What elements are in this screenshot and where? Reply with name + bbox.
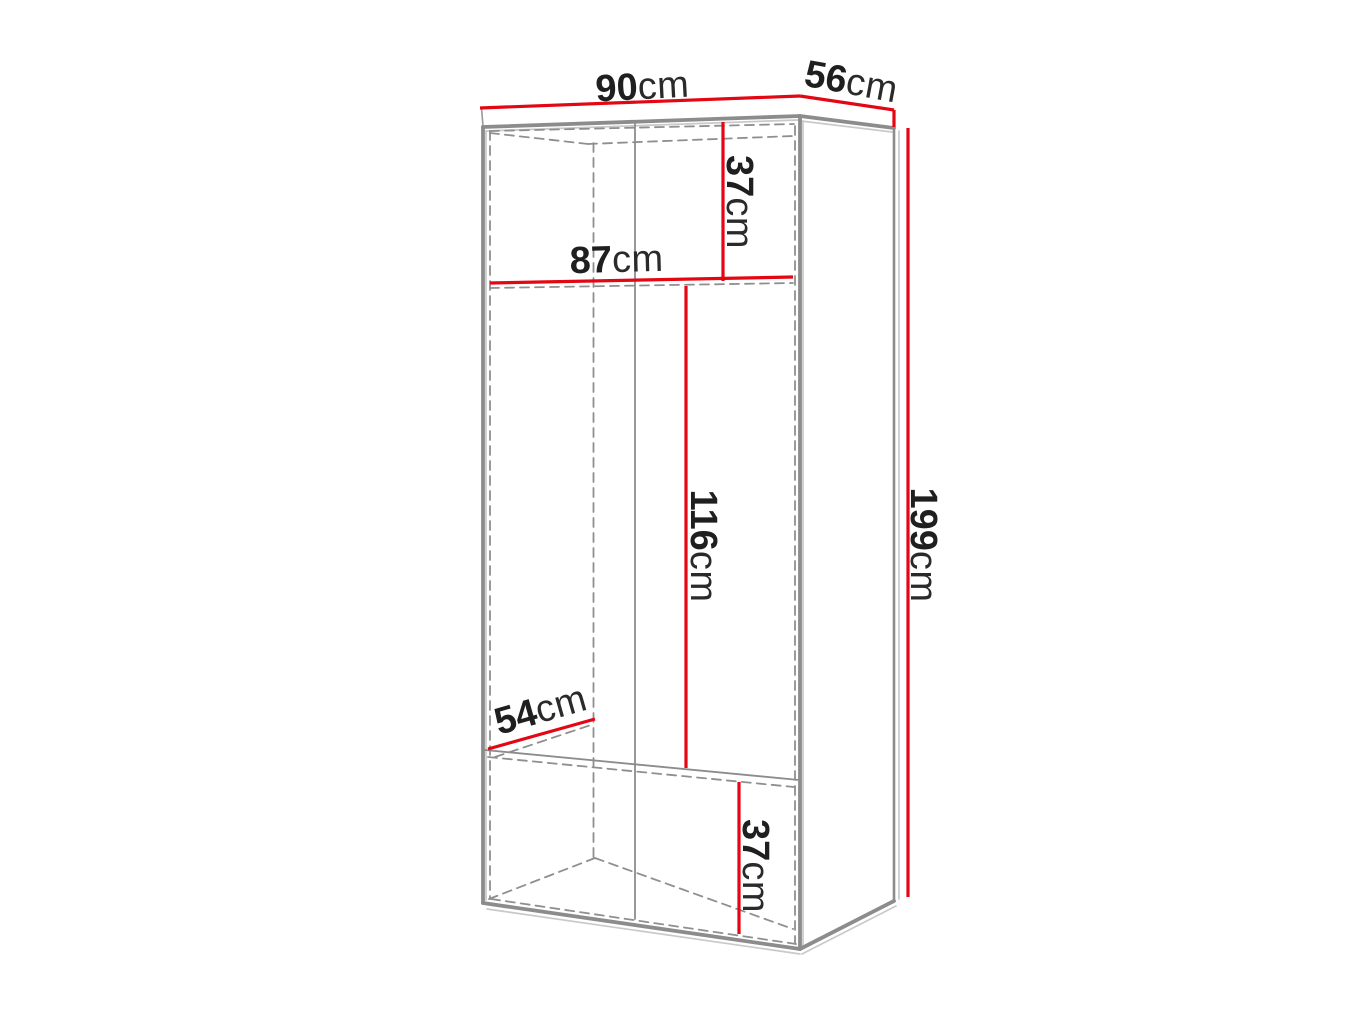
dim-value: 56 (801, 53, 850, 102)
dim-label-upper-section: 37cm (718, 155, 760, 249)
bottom-shelf-front-edge (485, 750, 799, 780)
bottom-right-edge-shade (802, 906, 896, 954)
hidden-upper-shelf-edge (490, 283, 793, 288)
dim-value: 37 (734, 819, 776, 861)
hidden-top-back-edge (588, 136, 793, 144)
dim-unit: cm (902, 551, 944, 603)
dim-value: 90 (594, 66, 638, 110)
dim-value: 116 (682, 490, 724, 551)
dim-label-lower-section: 37cm (734, 819, 776, 913)
dim-value: 87 (569, 239, 612, 282)
dim-label-interior-height: 116cm (682, 490, 724, 603)
dim-label-depth: 56cm (801, 53, 901, 111)
dim-unit: cm (718, 197, 760, 249)
diagram-canvas: 90cm 56cm 37cm 87cm 116cm 54cm 199cm 37c… (0, 0, 1346, 1010)
dim-label-height: 199cm (902, 487, 944, 602)
dim-value: 37 (718, 155, 760, 197)
dim-unit: cm (637, 64, 691, 109)
dim-unit: cm (682, 551, 724, 603)
wardrobe-dimension-diagram: 90cm 56cm 37cm 87cm 116cm 54cm 199cm 37c… (0, 0, 1346, 1010)
bottom-edge-shade (487, 909, 800, 954)
dimension-labels: 90cm 56cm 37cm 87cm 116cm 54cm 199cm 37c… (490, 53, 944, 913)
hidden-top-left-depth-edge (490, 133, 588, 144)
hidden-bottom-left-depth-edge (489, 858, 595, 899)
hidden-lower-shelf-edge (488, 757, 794, 787)
width-witness-line (482, 108, 484, 126)
dim-value: 199 (902, 487, 944, 550)
dim-unit: cm (611, 238, 664, 281)
dim-label-interior-width: 87cm (569, 238, 664, 282)
bottom-right-depth-edge (800, 901, 894, 949)
dim-unit: cm (734, 861, 776, 913)
dim-label-width: 90cm (594, 64, 690, 111)
